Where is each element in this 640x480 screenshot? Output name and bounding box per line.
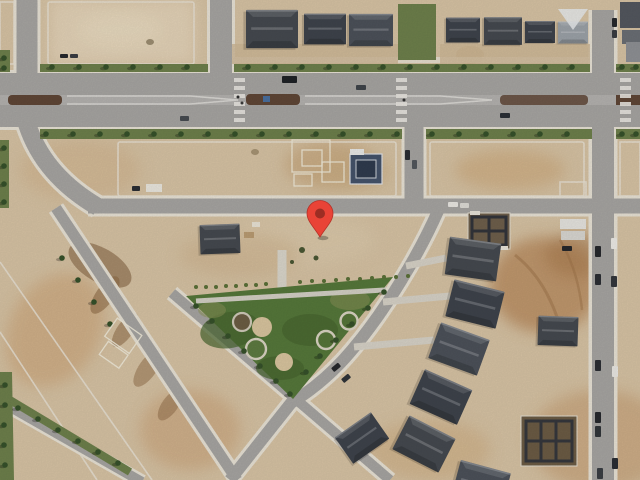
pin-shadow	[318, 236, 329, 240]
pin-inner-dot	[315, 209, 325, 219]
texture-overlay	[0, 0, 640, 480]
satellite-map[interactable]	[0, 0, 640, 480]
map-viewport[interactable]	[0, 0, 640, 480]
